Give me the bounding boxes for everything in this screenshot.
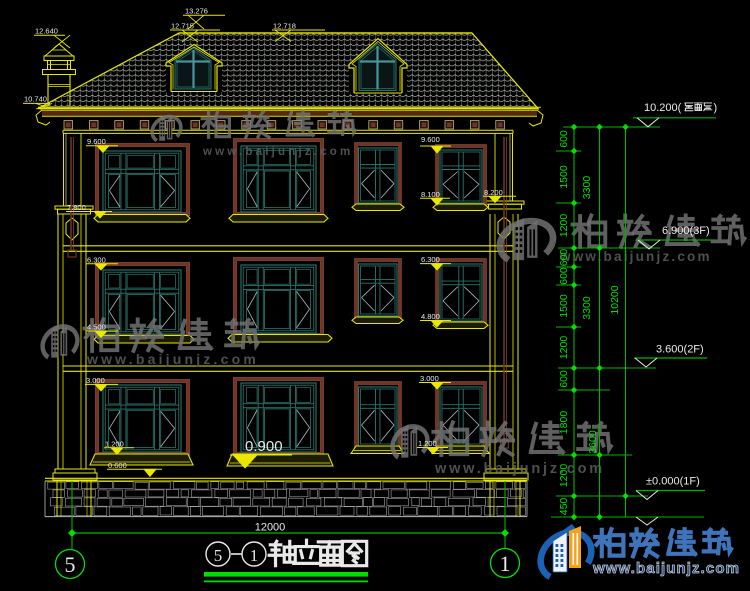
svg-text:4.800: 4.800: [421, 312, 440, 321]
svg-text:0.600: 0.600: [108, 461, 127, 470]
svg-text:1500: 1500: [558, 165, 570, 189]
svg-text:600: 600: [558, 249, 570, 267]
svg-text:1200: 1200: [558, 464, 570, 488]
svg-text:3.000: 3.000: [420, 374, 439, 383]
svg-text:1200: 1200: [558, 214, 570, 238]
svg-text:10200: 10200: [609, 285, 621, 314]
svg-text:www.baijunjz.com: www.baijunjz.com: [434, 461, 605, 477]
svg-text:1.200: 1.200: [105, 439, 124, 448]
svg-text:6.900(3F): 6.900(3F): [662, 225, 710, 237]
svg-text:5: 5: [214, 546, 223, 565]
svg-text:12.718: 12.718: [273, 22, 296, 31]
svg-text:8.200: 8.200: [484, 188, 503, 197]
svg-text:10.740: 10.740: [24, 95, 47, 104]
svg-text:1.200: 1.200: [418, 439, 437, 448]
svg-text:5: 5: [65, 552, 76, 577]
svg-text:10.200(: 10.200(: [644, 102, 682, 114]
svg-text:www.baijunjz.com: www.baijunjz.com: [592, 560, 740, 577]
svg-text:): ): [714, 102, 718, 114]
svg-text:9.600: 9.600: [421, 135, 440, 144]
svg-text:3300: 3300: [581, 176, 593, 200]
svg-text:450: 450: [558, 498, 570, 516]
svg-text:12.640: 12.640: [35, 27, 58, 36]
svg-text:1: 1: [250, 546, 259, 565]
svg-text:6.300: 6.300: [87, 255, 106, 264]
svg-text:6.300: 6.300: [421, 255, 440, 264]
svg-text:www.baijunjz.com: www.baijunjz.com: [202, 146, 353, 158]
svg-text:0.900: 0.900: [245, 438, 283, 455]
svg-text:3.600(2F): 3.600(2F): [656, 344, 704, 356]
svg-text:3300: 3300: [581, 296, 593, 320]
svg-text:4.500: 4.500: [87, 323, 106, 332]
svg-text:www.baijunjz.com: www.baijunjz.com: [86, 351, 259, 367]
svg-text:3.000: 3.000: [86, 376, 105, 385]
svg-text:12000: 12000: [255, 522, 286, 534]
svg-text:600: 600: [558, 267, 570, 285]
svg-text:www.baijunjz.com: www.baijunjz.com: [559, 249, 712, 264]
svg-text:600: 600: [558, 130, 570, 148]
svg-text:12.715: 12.715: [171, 22, 194, 31]
svg-text:1800: 1800: [558, 411, 570, 435]
svg-text:1200: 1200: [558, 336, 570, 360]
svg-text:7.800: 7.800: [67, 203, 86, 212]
svg-text:9.600: 9.600: [87, 137, 106, 146]
svg-text:600: 600: [558, 370, 570, 388]
svg-text:1500: 1500: [558, 294, 570, 318]
svg-text:3600: 3600: [587, 430, 599, 454]
svg-text:13.276: 13.276: [185, 7, 208, 16]
svg-text:1: 1: [500, 551, 511, 576]
svg-text:8.100: 8.100: [421, 190, 440, 199]
svg-text:±0.000(1F): ±0.000(1F): [646, 476, 700, 488]
